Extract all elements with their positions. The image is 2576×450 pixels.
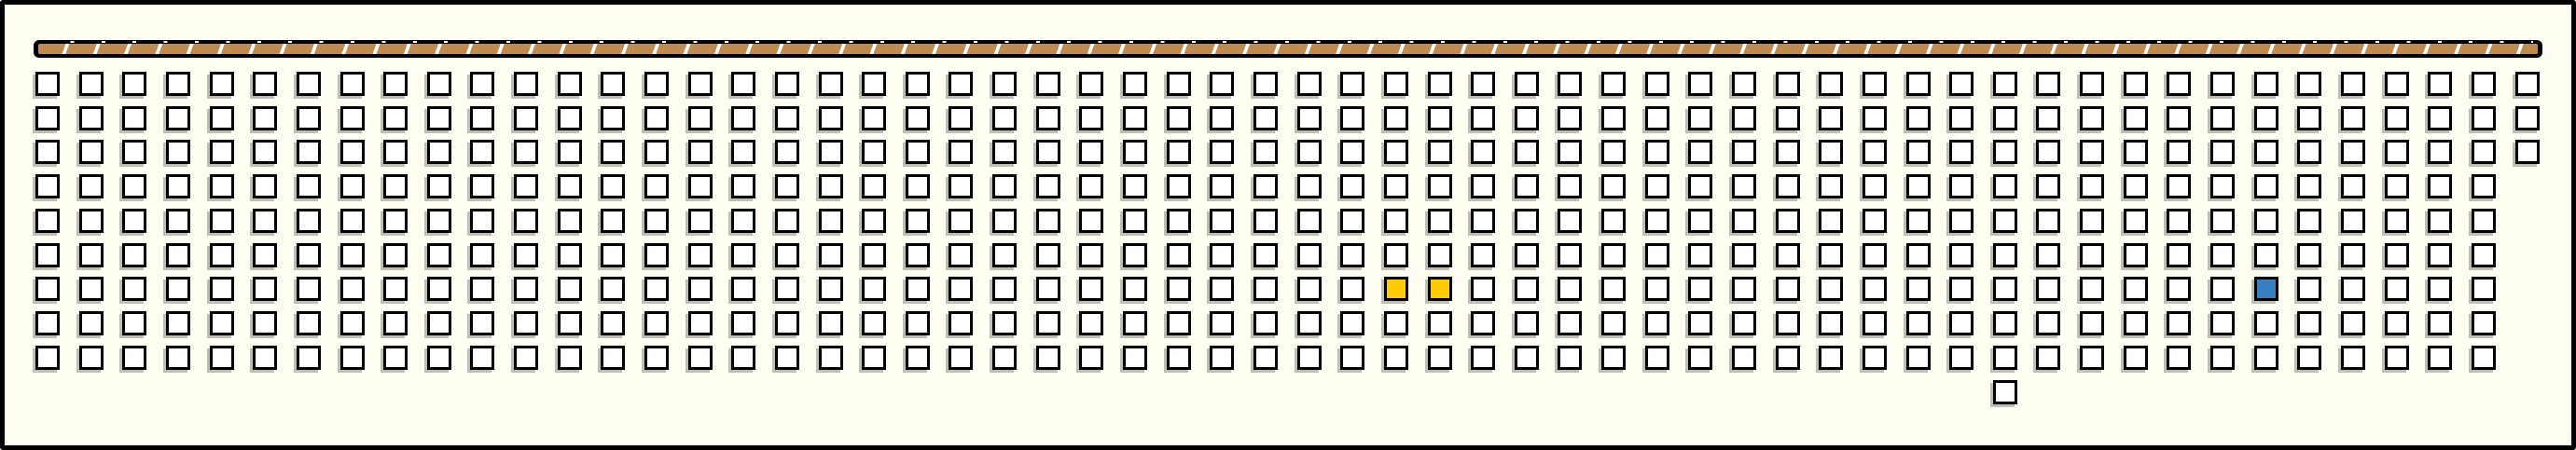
grid-cell[interactable] xyxy=(558,243,582,267)
grid-cell[interactable] xyxy=(253,209,277,233)
grid-cell[interactable] xyxy=(514,209,538,233)
grid-cell[interactable] xyxy=(1993,140,2017,164)
grid-cell[interactable] xyxy=(1079,174,1103,198)
grid-cell[interactable] xyxy=(1949,106,1974,130)
grid-cell[interactable] xyxy=(862,277,886,301)
grid-cell[interactable] xyxy=(2297,209,2321,233)
grid-cell[interactable] xyxy=(1036,311,1060,335)
grid-cell[interactable] xyxy=(1949,346,1974,370)
grid-cell[interactable] xyxy=(340,72,365,96)
grid-cell[interactable] xyxy=(1819,209,1843,233)
grid-cell[interactable] xyxy=(1428,174,1452,198)
grid-cell[interactable] xyxy=(1210,174,1234,198)
grid-cell[interactable] xyxy=(166,106,190,130)
grid-cell[interactable] xyxy=(514,174,538,198)
grid-cell[interactable] xyxy=(166,311,190,335)
grid-cell[interactable] xyxy=(1079,243,1103,267)
grid-cell[interactable] xyxy=(2428,174,2452,198)
grid-cell[interactable] xyxy=(79,311,104,335)
grid-cell[interactable] xyxy=(427,277,451,301)
grid-cell[interactable] xyxy=(122,174,146,198)
grid-cell[interactable] xyxy=(558,277,582,301)
grid-cell[interactable] xyxy=(731,72,755,96)
grid-cell[interactable] xyxy=(1688,106,1712,130)
grid-cell[interactable] xyxy=(2428,277,2452,301)
grid-cell[interactable] xyxy=(1688,174,1712,198)
grid-cell[interactable] xyxy=(35,106,60,130)
grid-cell[interactable] xyxy=(1384,346,1408,370)
grid-cell[interactable] xyxy=(1863,311,1887,335)
grid-cell[interactable] xyxy=(514,346,538,370)
grid-cell[interactable] xyxy=(79,140,104,164)
grid-cell[interactable] xyxy=(644,72,669,96)
grid-cell[interactable] xyxy=(1688,243,1712,267)
grid-cell[interactable] xyxy=(1471,346,1495,370)
grid-cell[interactable] xyxy=(558,311,582,335)
grid-cell[interactable] xyxy=(1167,174,1191,198)
grid-cell[interactable] xyxy=(2080,346,2104,370)
grid-cell[interactable] xyxy=(1776,243,1800,267)
grid-cell[interactable] xyxy=(210,72,234,96)
grid-cell[interactable] xyxy=(1210,346,1234,370)
grid-cell[interactable] xyxy=(2254,346,2278,370)
grid-cell[interactable] xyxy=(1776,277,1800,301)
grid-cell[interactable] xyxy=(2167,174,2191,198)
grid-cell[interactable] xyxy=(1906,346,1931,370)
grid-cell[interactable] xyxy=(2297,72,2321,96)
grid-cell[interactable] xyxy=(210,346,234,370)
grid-cell[interactable] xyxy=(1819,140,1843,164)
grid-cell[interactable] xyxy=(2254,140,2278,164)
grid-cell[interactable] xyxy=(297,209,321,233)
grid-cell[interactable] xyxy=(1776,72,1800,96)
grid-cell[interactable] xyxy=(2036,277,2060,301)
grid-cell[interactable] xyxy=(210,140,234,164)
grid-cell[interactable] xyxy=(2341,243,2365,267)
grid-cell[interactable] xyxy=(35,140,60,164)
grid-cell[interactable] xyxy=(2036,106,2060,130)
grid-cell[interactable] xyxy=(2428,346,2452,370)
grid-cell[interactable] xyxy=(1863,174,1887,198)
grid-cell[interactable] xyxy=(1601,346,1626,370)
grid-cell[interactable] xyxy=(1428,209,1452,233)
grid-cell[interactable] xyxy=(1079,209,1103,233)
grid-cell[interactable] xyxy=(1515,72,1539,96)
grid-cell[interactable] xyxy=(297,174,321,198)
grid-cell[interactable] xyxy=(166,140,190,164)
grid-cell[interactable] xyxy=(949,140,973,164)
grid-cell[interactable] xyxy=(79,106,104,130)
grid-cell[interactable] xyxy=(2472,72,2496,96)
grid-cell[interactable] xyxy=(2385,243,2409,267)
grid-cell[interactable] xyxy=(1167,106,1191,130)
grid-cell[interactable] xyxy=(1036,106,1060,130)
grid-cell[interactable] xyxy=(1515,346,1539,370)
grid-cell[interactable] xyxy=(35,277,60,301)
grid-cell[interactable] xyxy=(2297,311,2321,335)
grid-cell[interactable] xyxy=(1297,346,1322,370)
grid-cell[interactable] xyxy=(2036,346,2060,370)
grid-cell[interactable] xyxy=(427,346,451,370)
grid-cell[interactable] xyxy=(819,174,843,198)
grid-cell[interactable] xyxy=(1079,106,1103,130)
grid-cell[interactable] xyxy=(2341,140,2365,164)
grid-cell[interactable] xyxy=(1732,209,1756,233)
grid-cell[interactable] xyxy=(1906,140,1931,164)
grid-cell[interactable] xyxy=(819,106,843,130)
grid-cell[interactable] xyxy=(1949,72,1974,96)
grid-cell[interactable] xyxy=(166,174,190,198)
grid-cell[interactable] xyxy=(253,140,277,164)
grid-cell[interactable] xyxy=(1776,140,1800,164)
grid-cell[interactable] xyxy=(514,277,538,301)
grid-cell[interactable] xyxy=(470,209,494,233)
grid-cell[interactable] xyxy=(1036,209,1060,233)
grid-cell[interactable] xyxy=(2515,72,2540,96)
grid-cell[interactable] xyxy=(1558,243,1582,267)
grid-cell[interactable] xyxy=(1079,72,1103,96)
grid-cell[interactable] xyxy=(731,243,755,267)
grid-cell[interactable] xyxy=(992,209,1017,233)
grid-cell[interactable] xyxy=(2254,174,2278,198)
grid-cell[interactable] xyxy=(1732,140,1756,164)
grid-cell[interactable] xyxy=(1601,243,1626,267)
grid-cell[interactable] xyxy=(35,311,60,335)
grid-cell[interactable] xyxy=(383,346,408,370)
grid-cell[interactable] xyxy=(1123,72,1147,96)
grid-cell[interactable] xyxy=(1253,243,1278,267)
grid-cell[interactable] xyxy=(1819,277,1843,301)
grid-cell[interactable] xyxy=(1340,311,1364,335)
grid-cell[interactable] xyxy=(1471,140,1495,164)
grid-cell[interactable] xyxy=(2428,106,2452,130)
grid-cell[interactable] xyxy=(2124,243,2148,267)
grid-cell[interactable] xyxy=(1819,174,1843,198)
grid-cell[interactable] xyxy=(2472,174,2496,198)
grid-cell[interactable] xyxy=(2297,277,2321,301)
grid-cell[interactable] xyxy=(340,277,365,301)
grid-cell[interactable] xyxy=(2210,209,2235,233)
grid-cell[interactable] xyxy=(1645,72,1669,96)
grid-cell[interactable] xyxy=(2210,346,2235,370)
grid-cell[interactable] xyxy=(1863,209,1887,233)
grid-cell[interactable] xyxy=(1601,72,1626,96)
grid-cell[interactable] xyxy=(383,243,408,267)
grid-cell[interactable] xyxy=(2210,277,2235,301)
grid-cell-yellow[interactable] xyxy=(1384,277,1408,301)
grid-cell[interactable] xyxy=(2472,311,2496,335)
grid-cell[interactable] xyxy=(2472,209,2496,233)
grid-cell[interactable] xyxy=(1688,311,1712,335)
grid-cell[interactable] xyxy=(1645,140,1669,164)
grid-cell[interactable] xyxy=(2036,311,2060,335)
grid-cell[interactable] xyxy=(2167,346,2191,370)
grid-cell[interactable] xyxy=(601,243,625,267)
grid-cell[interactable] xyxy=(906,311,930,335)
grid-cell[interactable] xyxy=(297,72,321,96)
grid-cell[interactable] xyxy=(2167,106,2191,130)
grid-cell[interactable] xyxy=(862,140,886,164)
grid-cell[interactable] xyxy=(2472,106,2496,130)
grid-cell[interactable] xyxy=(383,209,408,233)
grid-cell[interactable] xyxy=(2254,243,2278,267)
grid-cell[interactable] xyxy=(1863,277,1887,301)
grid-cell[interactable] xyxy=(2297,106,2321,130)
grid-cell[interactable] xyxy=(644,209,669,233)
grid-cell[interactable] xyxy=(2515,140,2540,164)
grid-cell[interactable] xyxy=(1906,243,1931,267)
grid-cell[interactable] xyxy=(383,106,408,130)
grid-cell[interactable] xyxy=(1776,209,1800,233)
grid-cell[interactable] xyxy=(862,72,886,96)
grid-cell[interactable] xyxy=(297,140,321,164)
grid-cell[interactable] xyxy=(1340,140,1364,164)
grid-cell[interactable] xyxy=(383,72,408,96)
grid-cell[interactable] xyxy=(340,243,365,267)
grid-cell[interactable] xyxy=(644,277,669,301)
grid-cell[interactable] xyxy=(470,277,494,301)
grid-cell[interactable] xyxy=(558,140,582,164)
grid-cell[interactable] xyxy=(688,346,713,370)
grid-cell[interactable] xyxy=(731,277,755,301)
grid-cell[interactable] xyxy=(2080,277,2104,301)
grid-cell[interactable] xyxy=(1253,106,1278,130)
grid-cell[interactable] xyxy=(1993,209,2017,233)
grid-cell[interactable] xyxy=(1036,243,1060,267)
grid-cell[interactable] xyxy=(1167,209,1191,233)
grid-cell[interactable] xyxy=(122,346,146,370)
grid-cell[interactable] xyxy=(2080,243,2104,267)
grid-cell[interactable] xyxy=(122,140,146,164)
grid-cell[interactable] xyxy=(1297,174,1322,198)
grid-cell[interactable] xyxy=(1993,311,2017,335)
grid-cell[interactable] xyxy=(470,346,494,370)
grid-cell[interactable] xyxy=(2080,174,2104,198)
grid-cell[interactable] xyxy=(470,174,494,198)
grid-cell[interactable] xyxy=(122,106,146,130)
grid-cell[interactable] xyxy=(1036,277,1060,301)
grid-cell[interactable] xyxy=(2428,140,2452,164)
grid-cell[interactable] xyxy=(2036,140,2060,164)
grid-cell[interactable] xyxy=(688,140,713,164)
grid-cell[interactable] xyxy=(1123,106,1147,130)
grid-cell[interactable] xyxy=(1732,72,1756,96)
grid-cell[interactable] xyxy=(1688,277,1712,301)
grid-cell[interactable] xyxy=(1253,209,1278,233)
grid-cell[interactable] xyxy=(340,174,365,198)
grid-cell[interactable] xyxy=(2167,140,2191,164)
grid-cell[interactable] xyxy=(35,174,60,198)
grid-cell[interactable] xyxy=(1863,72,1887,96)
grid-cell[interactable] xyxy=(514,106,538,130)
grid-cell[interactable] xyxy=(2428,243,2452,267)
grid-cell[interactable] xyxy=(558,209,582,233)
grid-cell[interactable] xyxy=(2210,174,2235,198)
grid-cell[interactable] xyxy=(2472,346,2496,370)
grid-cell[interactable] xyxy=(383,140,408,164)
grid-cell[interactable] xyxy=(1601,106,1626,130)
grid-cell[interactable] xyxy=(253,346,277,370)
grid-cell[interactable] xyxy=(2254,72,2278,96)
grid-cell[interactable] xyxy=(949,277,973,301)
grid-cell[interactable] xyxy=(1558,72,1582,96)
grid-cell[interactable] xyxy=(688,209,713,233)
grid-cell[interactable] xyxy=(819,140,843,164)
grid-cell[interactable] xyxy=(1776,174,1800,198)
grid-cell[interactable] xyxy=(2036,72,2060,96)
grid-cell[interactable] xyxy=(775,106,799,130)
grid-cell[interactable] xyxy=(819,346,843,370)
grid-cell[interactable] xyxy=(1515,209,1539,233)
grid-cell[interactable] xyxy=(470,106,494,130)
grid-cell[interactable] xyxy=(906,209,930,233)
grid-cell[interactable] xyxy=(1949,209,1974,233)
grid-cell[interactable] xyxy=(383,311,408,335)
grid-cell[interactable] xyxy=(1210,243,1234,267)
grid-cell[interactable] xyxy=(210,106,234,130)
grid-cell[interactable] xyxy=(1123,140,1147,164)
grid-cell[interactable] xyxy=(1428,72,1452,96)
grid-cell[interactable] xyxy=(1949,140,1974,164)
grid-cell[interactable] xyxy=(340,106,365,130)
grid-cell[interactable] xyxy=(1297,72,1322,96)
grid-cell[interactable] xyxy=(1210,311,1234,335)
grid-cell[interactable] xyxy=(166,346,190,370)
grid-cell[interactable] xyxy=(1428,311,1452,335)
grid-cell[interactable] xyxy=(1906,174,1931,198)
grid-cell[interactable] xyxy=(1688,72,1712,96)
grid-cell[interactable] xyxy=(1645,174,1669,198)
grid-cell[interactable] xyxy=(122,243,146,267)
grid-cell[interactable] xyxy=(1167,277,1191,301)
grid-cell[interactable] xyxy=(1949,243,1974,267)
grid-cell[interactable] xyxy=(1123,311,1147,335)
grid-cell[interactable] xyxy=(862,346,886,370)
grid-cell[interactable] xyxy=(1732,311,1756,335)
grid-cell[interactable] xyxy=(2036,243,2060,267)
grid-cell[interactable] xyxy=(1863,243,1887,267)
grid-cell[interactable] xyxy=(1558,209,1582,233)
grid-cell[interactable] xyxy=(775,209,799,233)
grid-cell[interactable] xyxy=(1297,209,1322,233)
grid-cell[interactable] xyxy=(1297,106,1322,130)
grid-cell[interactable] xyxy=(644,174,669,198)
grid-cell[interactable] xyxy=(2254,311,2278,335)
grid-cell[interactable] xyxy=(775,174,799,198)
grid-cell[interactable] xyxy=(601,346,625,370)
grid-cell[interactable] xyxy=(1167,72,1191,96)
grid-cell[interactable] xyxy=(731,311,755,335)
grid-cell[interactable] xyxy=(2297,140,2321,164)
grid-cell[interactable] xyxy=(1384,174,1408,198)
grid-cell[interactable] xyxy=(1036,72,1060,96)
grid-cell[interactable] xyxy=(2210,106,2235,130)
grid-cell[interactable] xyxy=(2297,346,2321,370)
grid-cell[interactable] xyxy=(601,209,625,233)
grid-cell[interactable] xyxy=(35,209,60,233)
grid-cell[interactable] xyxy=(2124,140,2148,164)
grid-cell[interactable] xyxy=(1949,311,1974,335)
grid-cell[interactable] xyxy=(2167,209,2191,233)
grid-cell[interactable] xyxy=(1384,209,1408,233)
grid-cell[interactable] xyxy=(731,140,755,164)
grid-cell[interactable] xyxy=(2385,346,2409,370)
grid-cell[interactable] xyxy=(383,174,408,198)
grid-cell[interactable] xyxy=(688,311,713,335)
grid-cell[interactable] xyxy=(2210,243,2235,267)
grid-cell[interactable] xyxy=(514,311,538,335)
grid-cell[interactable] xyxy=(1558,311,1582,335)
grid-cell[interactable] xyxy=(688,243,713,267)
grid-cell[interactable] xyxy=(427,106,451,130)
grid-cell[interactable] xyxy=(2472,140,2496,164)
grid-cell[interactable] xyxy=(1428,106,1452,130)
grid-cell[interactable] xyxy=(297,243,321,267)
grid-cell[interactable] xyxy=(1471,72,1495,96)
grid-cell[interactable] xyxy=(2385,106,2409,130)
grid-cell[interactable] xyxy=(122,72,146,96)
grid-cell[interactable] xyxy=(1732,243,1756,267)
grid-cell[interactable] xyxy=(558,72,582,96)
grid-cell[interactable] xyxy=(949,311,973,335)
grid-cell[interactable] xyxy=(253,174,277,198)
grid-cell[interactable] xyxy=(1036,174,1060,198)
grid-cell[interactable] xyxy=(2210,311,2235,335)
grid-cell[interactable] xyxy=(1079,277,1103,301)
grid-cell[interactable] xyxy=(688,174,713,198)
grid-cell[interactable] xyxy=(2124,106,2148,130)
grid-cell[interactable] xyxy=(992,346,1017,370)
grid-cell[interactable] xyxy=(2341,72,2365,96)
grid-cell[interactable] xyxy=(122,209,146,233)
grid-cell[interactable] xyxy=(1123,243,1147,267)
grid-cell[interactable] xyxy=(2254,106,2278,130)
grid-cell[interactable] xyxy=(1210,72,1234,96)
grid-cell[interactable] xyxy=(775,311,799,335)
grid-cell[interactable] xyxy=(906,174,930,198)
grid-cell[interactable] xyxy=(1340,243,1364,267)
grid-cell[interactable] xyxy=(427,174,451,198)
grid-cell[interactable] xyxy=(340,209,365,233)
grid-cell[interactable] xyxy=(253,311,277,335)
grid-cell[interactable] xyxy=(1123,277,1147,301)
grid-cell[interactable] xyxy=(1515,277,1539,301)
grid-cell[interactable] xyxy=(253,72,277,96)
grid-cell[interactable] xyxy=(1253,140,1278,164)
grid-cell[interactable] xyxy=(1167,346,1191,370)
grid-cell[interactable] xyxy=(1732,346,1756,370)
grid-cell[interactable] xyxy=(1515,243,1539,267)
grid-cell[interactable] xyxy=(1428,346,1452,370)
grid-cell[interactable] xyxy=(1340,346,1364,370)
grid-cell[interactable] xyxy=(2385,277,2409,301)
grid-cell[interactable] xyxy=(1601,277,1626,301)
grid-cell[interactable] xyxy=(688,72,713,96)
grid-cell[interactable] xyxy=(1819,72,1843,96)
grid-cell[interactable] xyxy=(210,277,234,301)
grid-cell[interactable] xyxy=(340,140,365,164)
grid-cell[interactable] xyxy=(862,106,886,130)
grid-cell[interactable] xyxy=(1079,311,1103,335)
grid-cell[interactable] xyxy=(558,346,582,370)
grid-cell[interactable] xyxy=(1079,346,1103,370)
grid-cell[interactable] xyxy=(1688,140,1712,164)
grid-cell[interactable] xyxy=(2036,174,2060,198)
grid-cell[interactable] xyxy=(35,346,60,370)
grid-cell[interactable] xyxy=(166,243,190,267)
grid-cell[interactable] xyxy=(514,72,538,96)
grid-cell[interactable] xyxy=(2341,106,2365,130)
